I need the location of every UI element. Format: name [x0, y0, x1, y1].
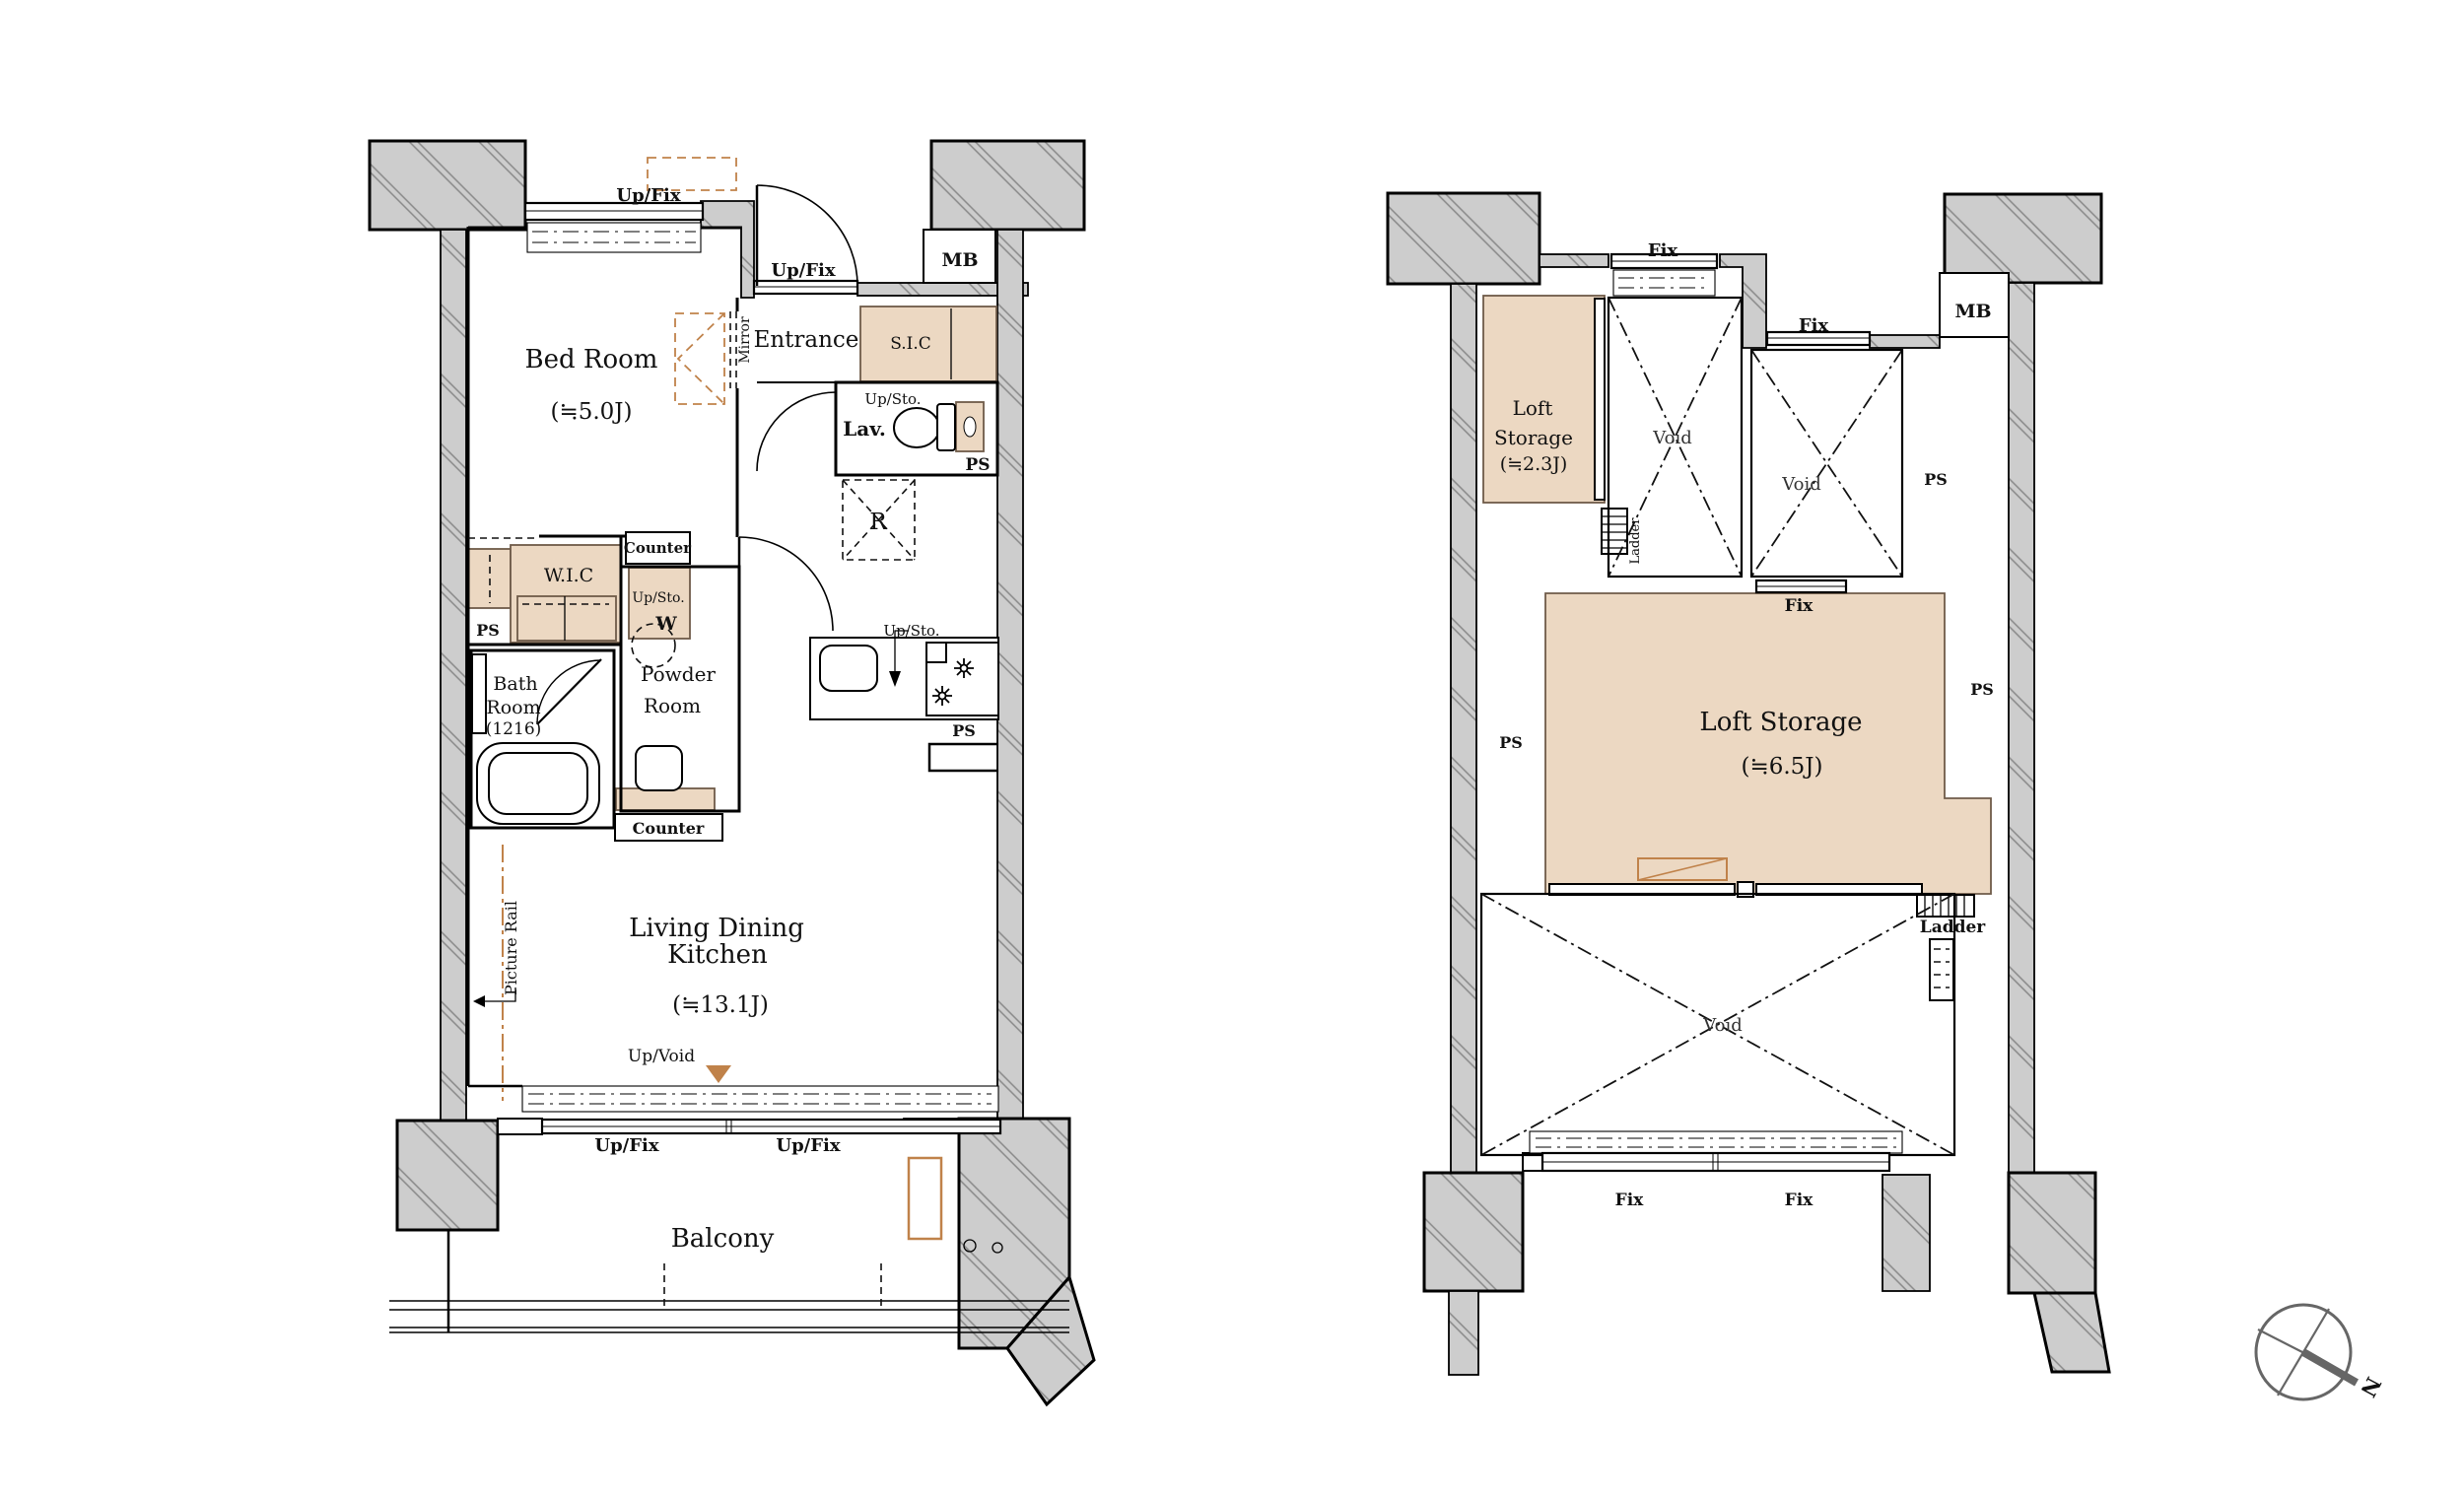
stove-burner-1	[954, 658, 974, 678]
label-loft-big: Loft Storage	[1699, 708, 1862, 737]
column-bottom-left	[397, 1121, 498, 1230]
kitchen-ps-notch	[929, 744, 998, 771]
wall-bottom-left-piece	[498, 1119, 542, 1134]
label-powder-1: Powder	[641, 662, 716, 686]
label-bath-1: Bath	[493, 673, 537, 695]
label-ps-4: PS	[1924, 470, 1948, 489]
floor-plan-canvas: Up/Fix Bed Room (≒5.0J) Mirror Entrance …	[0, 0, 2464, 1498]
label-loft-small-size: (≒2.3J)	[1500, 453, 1568, 475]
r-column-top-right	[1945, 194, 2101, 283]
label-upvoid: Up/Void	[628, 1047, 695, 1066]
label-void-3: Void	[1702, 1015, 1742, 1036]
r-wall-top-a	[1540, 254, 1608, 267]
bedroom-sliding-door	[730, 311, 736, 388]
r-column-br-tail	[2034, 1293, 2109, 1372]
label-ladder-1: Ladder	[1920, 918, 1987, 937]
label-mb-2: MB	[1954, 301, 1991, 322]
label-bedroom: Bed Room	[525, 345, 658, 374]
label-upsto-washer: Up/Sto.	[632, 590, 684, 606]
label-fix-1: Fix	[1648, 240, 1678, 261]
left-floor-plan: Up/Fix Bed Room (≒5.0J) Mirror Entrance …	[370, 141, 1094, 1404]
toilet-bowl	[894, 408, 939, 447]
kitchen-door-arc	[739, 537, 833, 631]
label-entrance: Entrance	[754, 327, 859, 353]
label-ldk-2: Kitchen	[667, 940, 768, 970]
right-floor-plan: Fix Fix MB Loft Storage (≒2.3J) Void Voi…	[1388, 193, 2109, 1375]
label-bath-size: (1216)	[486, 719, 542, 739]
label-counter-bottom: Counter	[633, 819, 705, 838]
label-fix-2: Fix	[1799, 315, 1829, 336]
bath-shower-panel	[472, 654, 486, 733]
label-upfix-bottom-2: Up/Fix	[776, 1135, 840, 1156]
left-exterior-wall	[441, 230, 466, 1122]
r-wall-top-b	[1870, 335, 1940, 348]
label-picture-rail: Picture Rail	[502, 901, 520, 995]
label-ps-6: PS	[1499, 733, 1523, 752]
balcony-partition-marks	[664, 1263, 881, 1311]
label-upsto-kitchen: Up/Sto.	[883, 622, 939, 640]
label-mb: MB	[941, 249, 978, 271]
label-powder-2: Room	[644, 694, 701, 717]
label-void-2: Void	[1781, 474, 1820, 495]
label-ps-5: PS	[1970, 680, 1994, 699]
label-loft-small-2: Storage	[1494, 426, 1573, 449]
floor-plan-page: Up/Fix Bed Room (≒5.0J) Mirror Entrance …	[0, 0, 2464, 1498]
label-ldk-size: (≒13.1J)	[672, 992, 769, 1018]
label-loft-small-1: Loft	[1513, 396, 1553, 420]
label-sic: S.I.C	[890, 334, 931, 354]
label-fix-3: Fix	[1785, 596, 1814, 616]
powder-counter-cabinet	[616, 788, 715, 810]
up-void-triangle	[706, 1065, 731, 1083]
label-ldk-1: Living Dining	[629, 914, 804, 943]
right-exterior-wall	[997, 230, 1023, 1122]
r-inner-pier	[1882, 1175, 1930, 1291]
label-washer: W	[654, 613, 677, 635]
compass-north-label: N	[2356, 1373, 2386, 1401]
wall-top-middle	[701, 201, 754, 298]
label-ladder-2: Ladder	[1628, 517, 1643, 565]
balcony-equipment-outline	[909, 1158, 941, 1239]
wic-lower-shelf	[517, 596, 616, 641]
label-mirror: Mirror	[737, 316, 753, 364]
label-bedroom-size: (≒5.0J)	[550, 399, 632, 425]
washbasin	[636, 746, 682, 790]
r-column-bl-tail	[1449, 1291, 1478, 1375]
r-column-bottom-left	[1424, 1173, 1523, 1291]
label-balcony: Balcony	[671, 1224, 775, 1254]
label-fix-5: Fix	[1785, 1191, 1814, 1210]
lav-door-arc	[757, 392, 836, 471]
r-column-bottom-right	[2009, 1173, 2095, 1293]
label-ps-3: PS	[952, 721, 976, 740]
toilet-tank	[937, 404, 955, 450]
label-upsto-lav: Up/Sto.	[864, 390, 921, 408]
column-top-left	[370, 141, 525, 230]
stove-burner-2	[932, 686, 952, 706]
r-column-top-left	[1388, 193, 1540, 284]
loft-storage-big	[1545, 593, 1991, 894]
label-lav: Lav.	[843, 417, 886, 441]
r-left-exterior-wall	[1451, 284, 1476, 1175]
label-wic: W.I.C	[544, 565, 593, 586]
label-counter-top: Counter	[624, 539, 692, 557]
label-void-1: Void	[1652, 428, 1691, 448]
loft-small-sliding-door	[1595, 299, 1605, 500]
label-fix-4: Fix	[1615, 1191, 1645, 1210]
label-ps-2: PS	[476, 621, 500, 640]
r-wall-corner	[1720, 254, 1766, 348]
label-loft-big-size: (≒6.5J)	[1741, 754, 1822, 780]
compass: N	[2256, 1305, 2386, 1401]
label-upfix-bottom-1: Up/Fix	[594, 1135, 658, 1156]
label-ps-1: PS	[965, 455, 990, 475]
label-bath-2: Room	[486, 697, 540, 718]
bedroom-closet-dashed	[675, 313, 724, 404]
label-upfix-bedroom: Up/Fix	[616, 185, 680, 206]
bedroom-closet-chevron	[678, 313, 724, 404]
wall-ladder-icon	[1930, 939, 1953, 1000]
label-upfix-entrance: Up/Fix	[771, 260, 835, 281]
kitchen-sink	[820, 646, 877, 691]
column-top-right	[931, 141, 1084, 230]
r-right-exterior-wall	[2009, 283, 2034, 1175]
label-refrigerator: R	[869, 510, 887, 535]
